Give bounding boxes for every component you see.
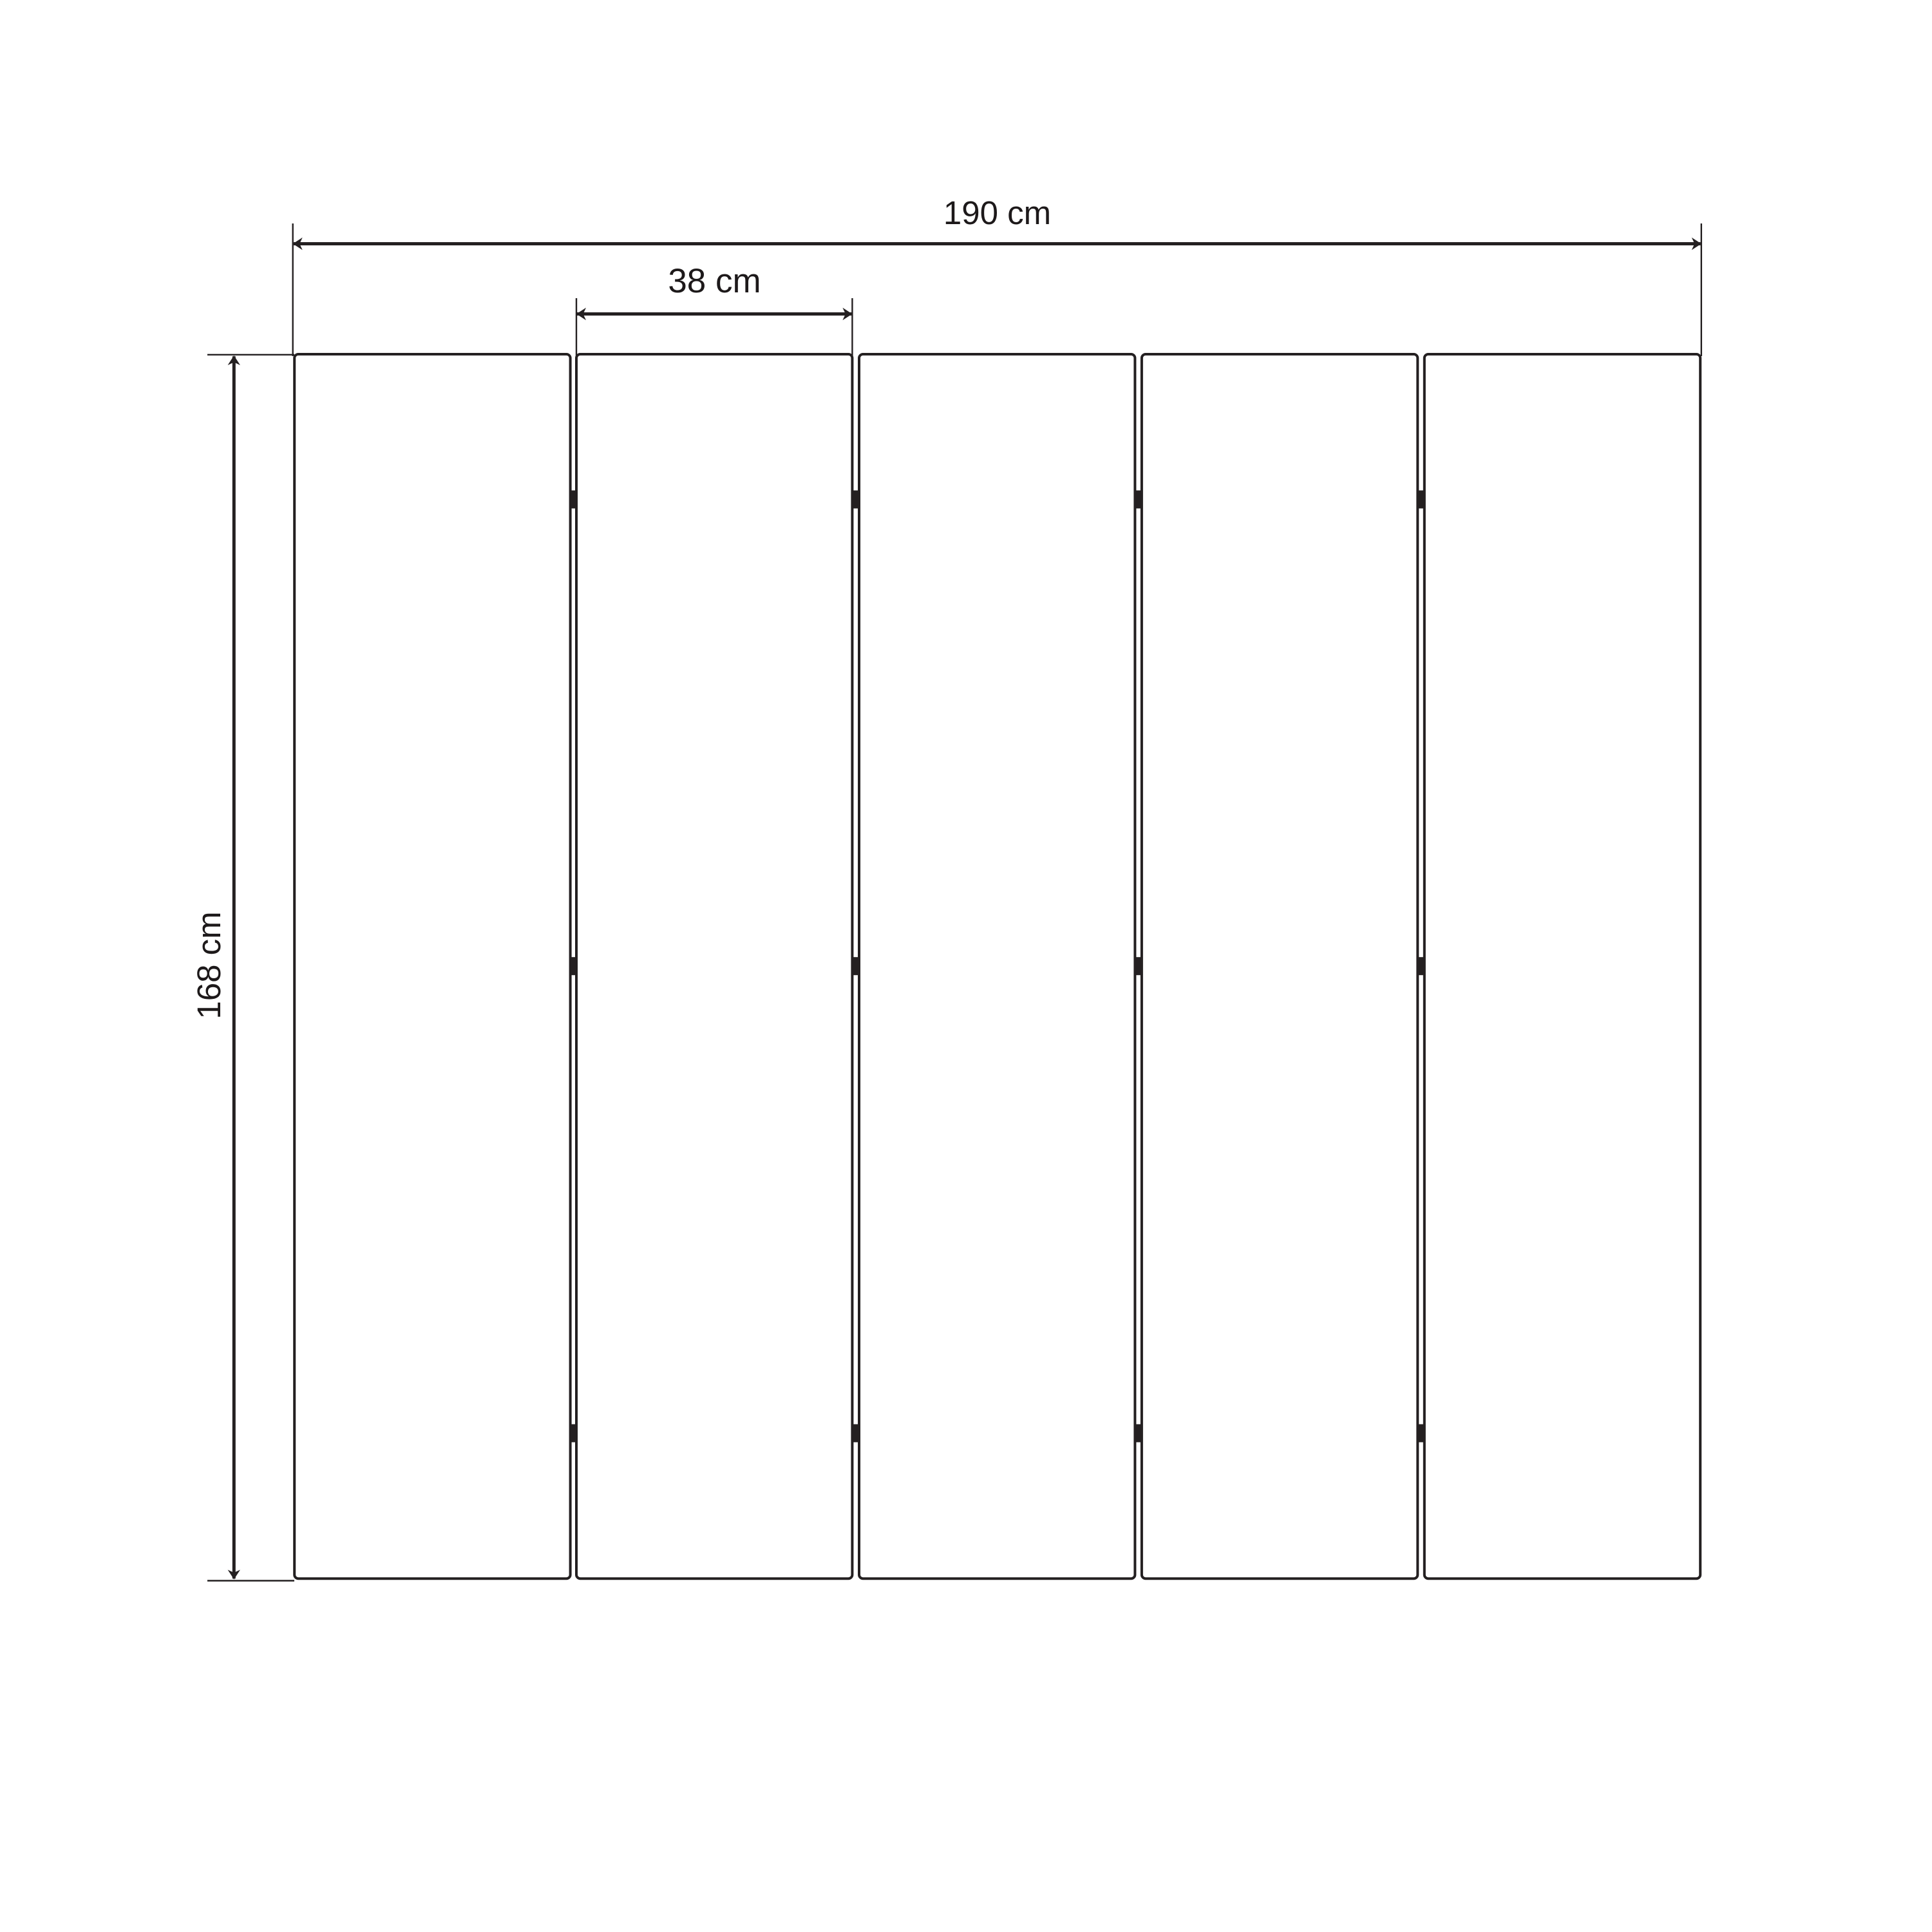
svg-text:168 cm: 168 cm (191, 911, 227, 1019)
svg-text:190 cm: 190 cm (943, 194, 1051, 231)
svg-text:38 cm: 38 cm (668, 262, 761, 300)
